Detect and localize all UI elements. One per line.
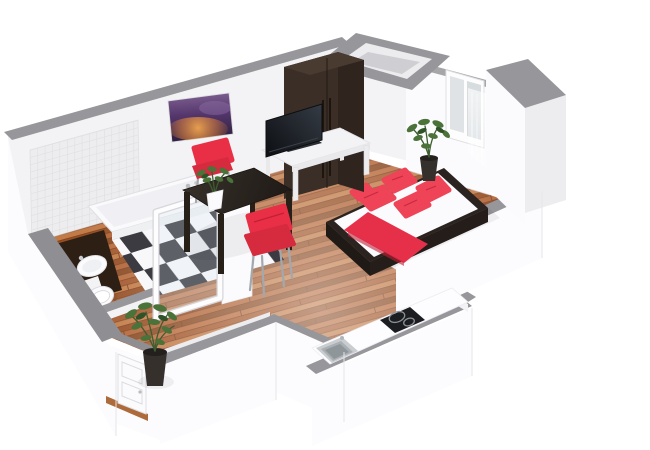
basin-faucet xyxy=(79,256,83,260)
ne-wall-face-se xyxy=(525,95,566,213)
bench-leg xyxy=(293,167,298,201)
plant-pot xyxy=(420,158,438,181)
plant-pot xyxy=(143,352,167,386)
window-pane-left xyxy=(450,76,464,133)
bench-leg xyxy=(364,145,369,175)
door-knob xyxy=(138,390,141,393)
apartment-3d-render xyxy=(0,0,650,450)
wall-artwork xyxy=(168,93,233,142)
plant-pot-white xyxy=(207,190,223,211)
table-leg xyxy=(218,214,224,274)
sink-faucet xyxy=(340,336,344,340)
wardrobe-side xyxy=(338,52,364,192)
table-leg xyxy=(184,192,190,252)
